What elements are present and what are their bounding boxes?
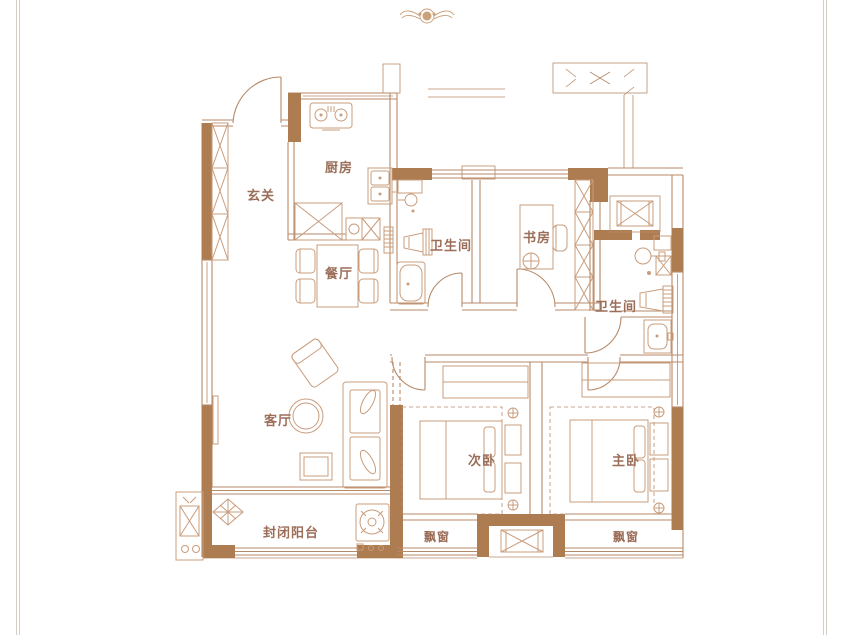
floor-plan-drawing: 玄关 厨房 [0, 0, 846, 635]
room-master-bedroom: 主卧 [550, 363, 670, 514]
balcony-south-window [235, 548, 357, 555]
label-bathroom1: 卫生间 [430, 238, 472, 254]
page-frame [17, 0, 827, 635]
ac-recess-icon [489, 530, 553, 557]
study-door [517, 269, 555, 307]
master-bedroom-door [588, 357, 620, 390]
room-bathroom-2: 卫生间 [595, 196, 673, 353]
winged-ornament-icon [400, 9, 454, 23]
entry-door [233, 77, 281, 123]
living-west-window [202, 260, 212, 405]
label-study: 书房 [523, 230, 551, 246]
washbasin-icon [398, 180, 422, 213]
label-living: 客厅 [264, 413, 292, 429]
room-study: 书房 [520, 180, 593, 310]
towel-radiator-icon [384, 227, 393, 253]
adjacent-structure-outline [383, 63, 647, 168]
room-living: 客厅 [213, 337, 387, 488]
label-second-bedroom: 次卧 [468, 453, 496, 469]
label-bay-window-left: 飘窗 [424, 529, 450, 544]
windows [202, 96, 683, 555]
bay-windows: 飘窗 飘窗 [397, 529, 683, 558]
plant-decor-icon [213, 499, 243, 525]
wardrobe-master-icon [582, 363, 670, 397]
coffee-table-icon [289, 399, 323, 433]
floor-plan-page: 玄关 厨房 [0, 0, 846, 635]
bathroom2-door [585, 317, 621, 353]
wall-fills [202, 93, 683, 558]
sofa-icon [343, 382, 387, 488]
kitchen-sink-icon [368, 168, 396, 204]
label-bathroom2: 卫生间 [595, 299, 637, 315]
room-second-bedroom: 次卧 [402, 366, 528, 514]
study-north-window [432, 166, 568, 179]
label-entry: 玄关 [247, 188, 275, 204]
toilet2-icon [640, 286, 673, 313]
washbasin2-icon [644, 320, 673, 353]
equipment-platform-icon [176, 492, 203, 560]
tv-icon [213, 396, 218, 444]
washing-machine-icon [356, 504, 389, 551]
toilet-icon [404, 229, 432, 255]
second-bedroom-door [392, 357, 425, 390]
east-window [672, 272, 683, 407]
armchair-icon [290, 337, 339, 388]
ac-alcove-icon [610, 196, 660, 232]
bathroom1-door [428, 273, 462, 307]
shoe-cabinet-icon [212, 123, 228, 260]
room-kitchen: 厨房 [295, 103, 396, 240]
walls [202, 93, 683, 558]
label-balcony: 封闭阳台 [263, 525, 319, 541]
label-kitchen: 厨房 [325, 160, 353, 176]
room-dining: 餐厅 [296, 245, 378, 307]
bathtub-icon [397, 262, 425, 304]
room-entry: 玄关 [212, 123, 275, 260]
label-dining: 餐厅 [324, 266, 353, 282]
bay-window-right: 飘窗 [565, 529, 683, 558]
bay-window-left: 飘窗 [397, 529, 477, 558]
shaft-icon [656, 256, 671, 275]
side-table-icon [300, 453, 332, 480]
label-bay-window-right: 飘窗 [613, 529, 639, 544]
stove-icon [310, 103, 352, 130]
wardrobe2-icon [443, 366, 528, 398]
label-master-bedroom: 主卧 [612, 453, 640, 469]
